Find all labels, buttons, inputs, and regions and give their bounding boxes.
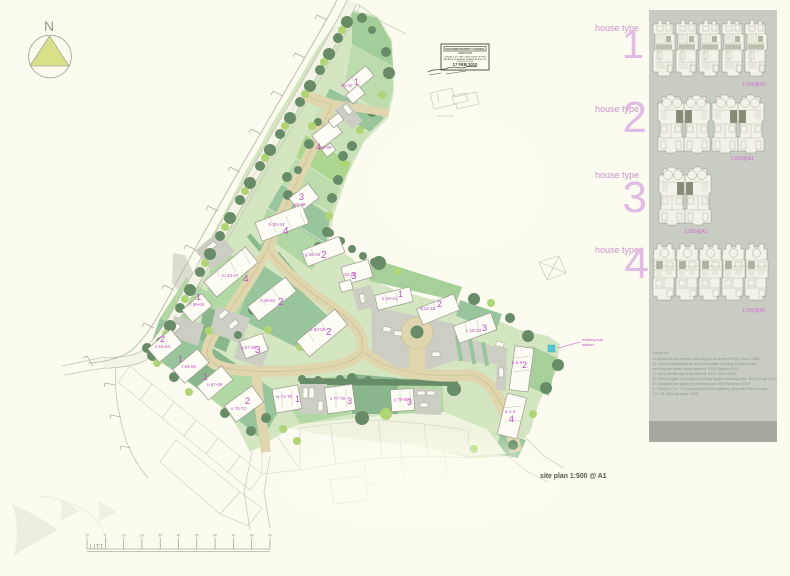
svg-text:50: 50 xyxy=(195,534,199,538)
svg-text:s 61-63: s 61-63 xyxy=(155,344,171,349)
svg-text:CHILTERN DISTRICT COUNCIL: CHILTERN DISTRICT COUNCIL xyxy=(445,47,485,51)
svg-text:x 77-78: x 77-78 xyxy=(330,396,346,401)
svg-text:40: 40 xyxy=(177,534,181,538)
svg-text:station: station xyxy=(582,342,594,347)
svg-text:d 14-18: d 14-18 xyxy=(420,306,436,311)
svg-text:m 43-47: m 43-47 xyxy=(222,273,239,278)
svg-text:4: 4 xyxy=(283,226,289,237)
svg-text:3: 3 xyxy=(299,192,304,202)
svg-text:90: 90 xyxy=(268,534,272,538)
svg-text:1:200@A1: 1:200@A1 xyxy=(742,308,766,314)
svg-text:17 FEB 2010: 17 FEB 2010 xyxy=(453,62,478,67)
svg-text:74 -78. BW January 2008: 74 -78. BW January 2008 xyxy=(653,391,699,396)
svg-text:c 10-13: c 10-13 xyxy=(466,328,482,333)
svg-text:1: 1 xyxy=(203,372,208,382)
svg-text:1: 1 xyxy=(354,77,359,87)
svg-text:1: 1 xyxy=(196,292,201,302)
svg-text:60: 60 xyxy=(213,534,217,538)
svg-text:4: 4 xyxy=(625,239,649,288)
svg-text:2: 2 xyxy=(278,297,284,308)
svg-text:3: 3 xyxy=(407,397,412,407)
svg-text:30: 30 xyxy=(158,534,162,538)
svg-text:80: 80 xyxy=(250,534,254,538)
svg-text:2: 2 xyxy=(160,334,165,344)
svg-text:70: 70 xyxy=(232,534,236,538)
svg-text:metres: metres xyxy=(96,543,104,546)
svg-text:N: N xyxy=(44,18,54,34)
svg-text:3: 3 xyxy=(623,173,647,222)
svg-text:4: 4 xyxy=(316,142,321,152)
svg-text:1: 1 xyxy=(295,394,300,404)
svg-text:n 48-51: n 48-51 xyxy=(260,298,276,303)
svg-text:4: 4 xyxy=(509,414,514,424)
svg-text:2: 2 xyxy=(245,396,250,406)
svg-text:2: 2 xyxy=(522,360,527,370)
svg-text:g 26-29: g 26-29 xyxy=(305,252,321,257)
svg-text:w 71-76: w 71-76 xyxy=(276,394,293,399)
svg-text:3: 3 xyxy=(351,271,357,282)
svg-text:e 19-21: e 19-21 xyxy=(382,296,398,301)
svg-text:site plan 1:500 @ A1: site plan 1:500 @ A1 xyxy=(540,473,607,480)
svg-text:1: 1 xyxy=(622,23,644,67)
svg-text:revisions: revisions xyxy=(653,350,669,355)
svg-text:3: 3 xyxy=(482,323,487,333)
svg-text:t 64-66: t 64-66 xyxy=(182,364,197,369)
svg-text:2: 2 xyxy=(326,327,332,338)
svg-text:2: 2 xyxy=(321,250,327,261)
svg-text:approximate: approximate xyxy=(437,114,454,118)
svg-text:3: 3 xyxy=(255,345,261,356)
svg-text:r 59-60: r 59-60 xyxy=(190,302,205,307)
svg-text:1: 1 xyxy=(178,354,183,364)
svg-text:2: 2 xyxy=(437,299,442,309)
svg-text:4: 4 xyxy=(243,274,249,285)
svg-text:36-38: 36-38 xyxy=(294,202,306,207)
svg-text:40-42: 40-42 xyxy=(341,83,353,88)
svg-text:v 70-72: v 70-72 xyxy=(231,406,247,411)
svg-text:1: 1 xyxy=(398,289,403,299)
svg-text:0: 0 xyxy=(104,534,106,538)
svg-text:1:200@A1: 1:200@A1 xyxy=(684,229,708,235)
svg-text:10: 10 xyxy=(85,534,89,538)
svg-text:2: 2 xyxy=(623,93,647,142)
svg-text:AMERSHAM: AMERSHAM xyxy=(458,52,472,55)
svg-text:3: 3 xyxy=(347,396,352,406)
svg-text:1:200@A1: 1:200@A1 xyxy=(730,156,754,162)
svg-text:37-39: 37-39 xyxy=(320,145,332,150)
svg-text:20: 20 xyxy=(140,534,144,538)
svg-text:u 67-69: u 67-69 xyxy=(207,382,223,387)
svg-text:10: 10 xyxy=(122,534,126,538)
svg-text:1:200@A1: 1:200@A1 xyxy=(742,82,766,88)
svg-text:o 50-55: o 50-55 xyxy=(310,327,326,332)
